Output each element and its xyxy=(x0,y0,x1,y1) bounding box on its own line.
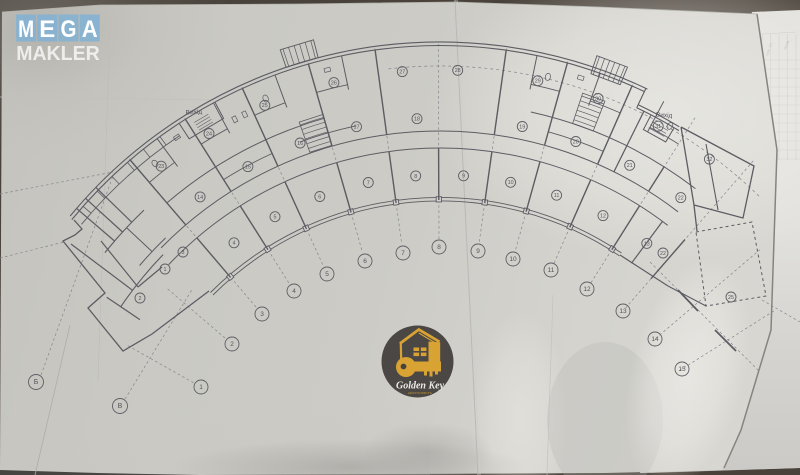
svg-text:1: 1 xyxy=(164,267,167,273)
svg-text:Golden Key: Golden Key xyxy=(396,381,445,392)
svg-text:22: 22 xyxy=(660,251,666,257)
svg-text:2: 2 xyxy=(230,341,234,348)
svg-text:4: 4 xyxy=(233,241,236,247)
svg-text:10: 10 xyxy=(508,180,514,186)
svg-text:12: 12 xyxy=(583,286,591,293)
svg-text:17: 17 xyxy=(354,125,360,131)
svg-text:29: 29 xyxy=(535,79,541,85)
svg-text:14: 14 xyxy=(651,336,659,343)
svg-text:21: 21 xyxy=(627,163,633,169)
svg-text:14: 14 xyxy=(197,195,203,201)
svg-text:30: 30 xyxy=(595,96,601,102)
svg-text:6: 6 xyxy=(318,194,321,200)
svg-text:1: 1 xyxy=(199,384,203,391)
svg-text:Вихід: Вихід xyxy=(185,107,202,116)
svg-text:НЕРУХОМІСТЬ: НЕРУХОМІСТЬ xyxy=(408,391,432,395)
svg-text:В: В xyxy=(118,403,123,410)
svg-text:5: 5 xyxy=(325,271,329,278)
svg-text:11: 11 xyxy=(554,193,560,199)
svg-text:13: 13 xyxy=(644,241,650,247)
svg-text:20: 20 xyxy=(573,139,579,145)
svg-text:MAKLER: MAKLER xyxy=(16,43,100,65)
svg-text:8: 8 xyxy=(414,174,417,180)
svg-text:Вихід: Вихід xyxy=(656,110,673,119)
svg-text:32: 32 xyxy=(706,157,712,163)
svg-text:7: 7 xyxy=(401,250,405,257)
svg-text:7: 7 xyxy=(367,180,370,186)
svg-text:16: 16 xyxy=(297,141,303,147)
svg-text:6: 6 xyxy=(363,258,367,265)
svg-text:19: 19 xyxy=(519,124,525,130)
svg-text:26: 26 xyxy=(331,81,337,87)
svg-text:G: G xyxy=(61,16,77,43)
svg-text:3: 3 xyxy=(260,311,264,318)
svg-text:23: 23 xyxy=(158,164,164,170)
svg-text:12: 12 xyxy=(600,214,606,220)
svg-text:15: 15 xyxy=(245,165,251,171)
svg-text:28: 28 xyxy=(455,68,461,74)
svg-text:27: 27 xyxy=(399,70,405,76)
svg-text:A: A xyxy=(82,16,98,43)
svg-text:3: 3 xyxy=(182,250,185,256)
svg-text:15: 15 xyxy=(678,366,686,373)
svg-text:25: 25 xyxy=(728,295,734,301)
svg-text:25: 25 xyxy=(262,103,268,109)
svg-text:11: 11 xyxy=(548,267,555,274)
svg-text:24: 24 xyxy=(206,131,212,137)
svg-text:2: 2 xyxy=(139,296,142,302)
svg-text:13: 13 xyxy=(619,308,627,315)
svg-text:4: 4 xyxy=(292,288,296,295)
svg-text:5: 5 xyxy=(274,215,277,221)
svg-text:9: 9 xyxy=(476,248,480,255)
svg-text:8: 8 xyxy=(437,244,441,251)
svg-text:22: 22 xyxy=(678,196,684,202)
svg-text:10: 10 xyxy=(509,256,517,263)
svg-text:E: E xyxy=(39,16,55,43)
svg-text:18: 18 xyxy=(414,117,420,123)
svg-text:9: 9 xyxy=(462,174,465,180)
svg-text:M: M xyxy=(18,16,34,43)
svg-text:31: 31 xyxy=(655,124,661,130)
svg-text:Б: Б xyxy=(34,379,39,386)
